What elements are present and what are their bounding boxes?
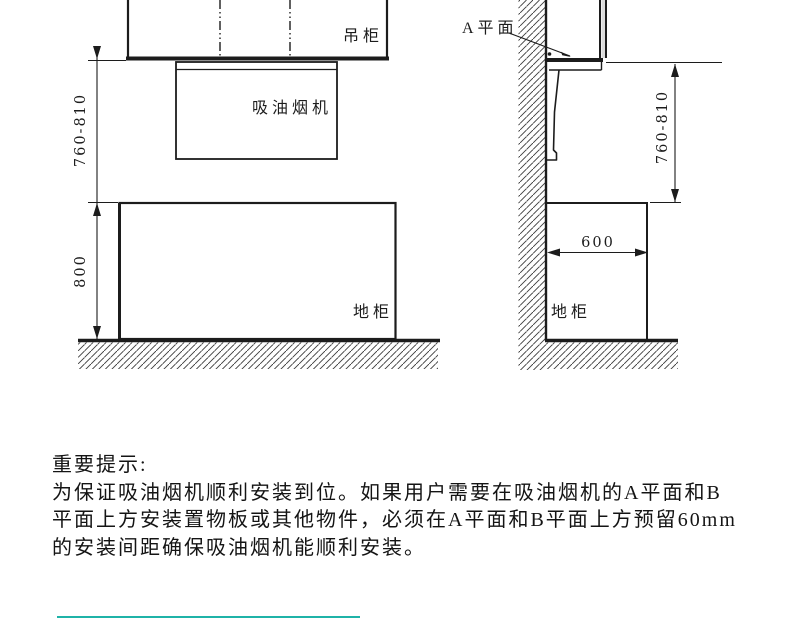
dim-arrow-up [671,64,679,77]
manual-page: 吊柜 吸油烟机 地柜 [0,0,790,619]
a-plane-label: A平面 [462,20,518,37]
dim-label-hood-height-side: 760-810 [655,90,671,164]
side-view: A平面 760-810 地柜 600 [462,0,722,370]
floor-hatch [545,343,678,370]
floor-hatch [78,343,438,370]
base-cabinet-label-side: 地柜 [551,303,591,321]
note-line: 的安装间距确保吸油烟机能顺利安装。 [52,535,767,563]
dim-arrow-down [671,189,679,202]
dim-label-cabinet-depth: 600 [581,235,615,251]
important-note: 重要提示: 为保证吸油烟机顺利安装到位。如果用户需要在吸油烟机的A平面和B 平面… [52,452,767,562]
dim-arrow-down [93,46,101,59]
note-line: 为保证吸油烟机顺利安装到位。如果用户需要在吸油烟机的A平面和B [52,480,767,508]
front-view: 吊柜 吸油烟机 地柜 [73,0,440,369]
wall [519,0,547,370]
base-cabinet-label: 地柜 [353,303,393,321]
dim-label-hood-height: 760-810 [73,93,89,167]
hanging-cabinet-label: 吊柜 [343,27,383,45]
floor [78,341,440,370]
note-title: 重要提示: [52,452,767,480]
range-hood-side-profile [546,60,603,160]
range-hood-label: 吸油烟机 [252,99,332,117]
installation-diagram: 吊柜 吸油烟机 地柜 [0,0,790,445]
dim-arrow-up [93,203,101,216]
footer-accent-line [57,616,360,618]
wall-hatch [519,0,546,370]
floor-side [545,341,678,370]
dim-arrow-down [93,326,101,339]
dim-arrow-left [547,249,560,257]
note-line: 平面上方安装置物板或其他物件，必须在A平面和B平面上方预留60mm [52,507,767,535]
dim-label-counter-height: 800 [73,254,89,288]
chimney-duct [600,0,606,58]
